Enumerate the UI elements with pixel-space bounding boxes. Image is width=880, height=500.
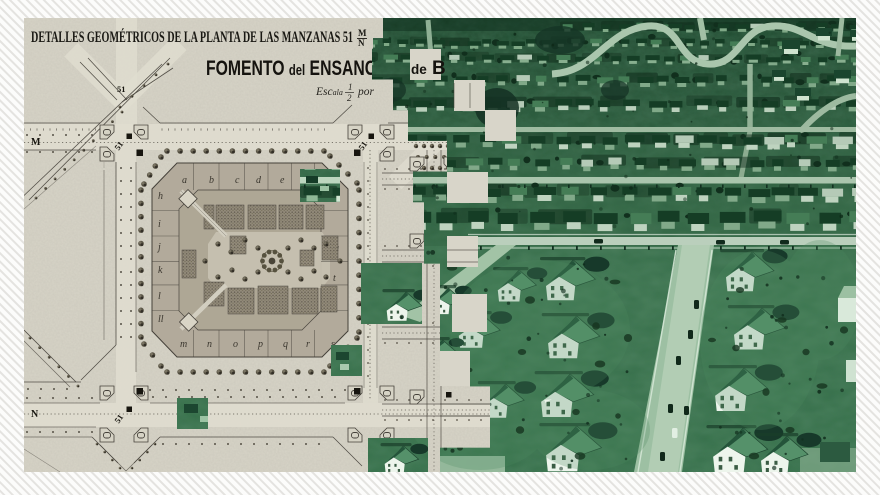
svg-text:k: k — [158, 265, 163, 276]
svg-text:o: o — [233, 339, 238, 350]
svg-text:ll: ll — [158, 314, 164, 325]
svg-text:i: i — [158, 219, 161, 230]
svg-text:n: n — [207, 339, 212, 350]
svg-text:q: q — [283, 339, 288, 350]
svg-text:t: t — [333, 273, 336, 284]
svg-text:1: 1 — [348, 82, 353, 92]
svg-text:N: N — [358, 38, 365, 48]
svg-text:N: N — [31, 409, 39, 420]
svg-text:2: 2 — [347, 93, 352, 103]
svg-text:e: e — [280, 175, 285, 186]
svg-text:r: r — [306, 339, 310, 350]
svg-text:c: c — [235, 175, 240, 186]
svg-text:M: M — [31, 137, 41, 148]
svg-text:p: p — [257, 339, 263, 350]
svg-text:h: h — [158, 191, 163, 202]
svg-text:M: M — [358, 28, 367, 38]
svg-text:por: por — [357, 86, 375, 98]
svg-text:l: l — [158, 291, 161, 302]
svg-text:a: a — [182, 175, 187, 186]
svg-text:m: m — [180, 339, 187, 350]
svg-text:51: 51 — [117, 84, 126, 94]
svg-text:DETALLES GEOMÉTRICOS DE LA PLA: DETALLES GEOMÉTRICOS DE LA PLANTA DE LAS… — [31, 29, 353, 46]
svg-text:b: b — [209, 175, 214, 186]
svg-text:de B: de B — [411, 58, 446, 79]
svg-text:Escala: Escala — [315, 86, 343, 98]
